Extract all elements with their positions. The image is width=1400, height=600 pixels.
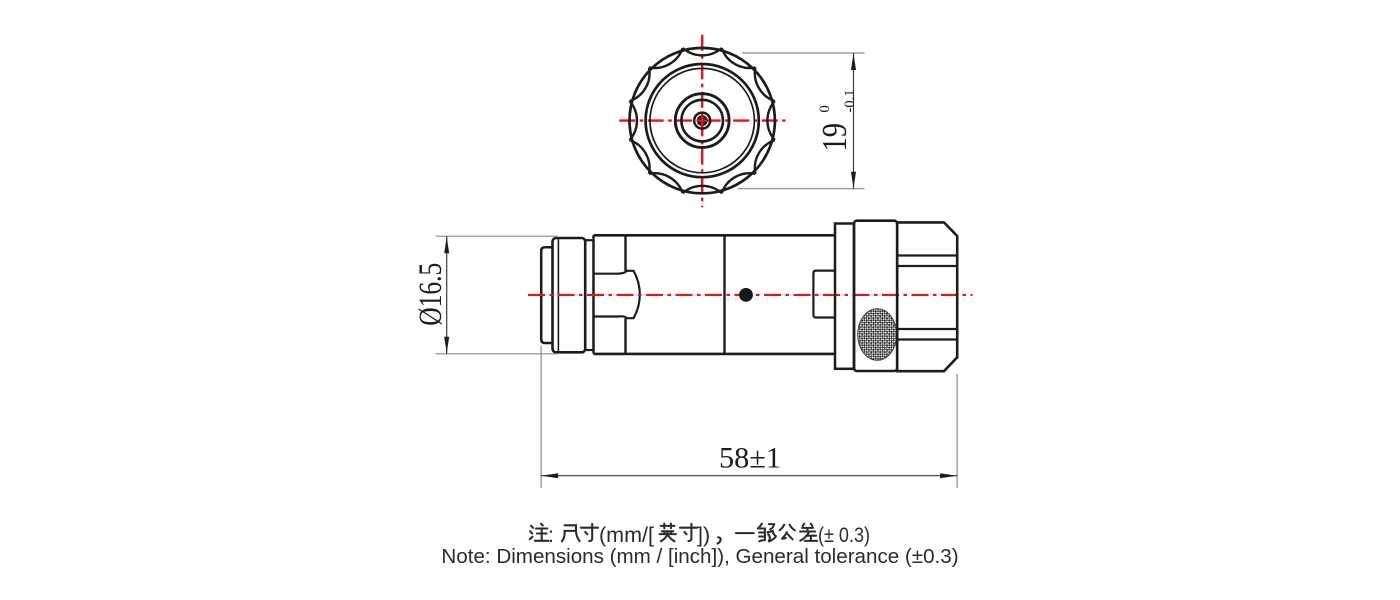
svg-text:58±1: 58±1 (719, 442, 781, 475)
svg-text:0: 0 (817, 105, 833, 112)
svg-text:19: 19 (815, 123, 854, 152)
svg-text:-0.1: -0.1 (842, 90, 858, 113)
svg-text::: : (548, 523, 554, 547)
svg-text:(± 0.3): (± 0.3) (818, 523, 870, 547)
svg-text:Note: Dimensions (mm / [inch]): Note: Dimensions (mm / [inch]), General … (441, 545, 958, 568)
svg-text:(mm/[: (mm/[ (599, 523, 654, 547)
svg-text:Ø16.5: Ø16.5 (413, 263, 449, 326)
svg-text:]): ]) (697, 523, 710, 547)
